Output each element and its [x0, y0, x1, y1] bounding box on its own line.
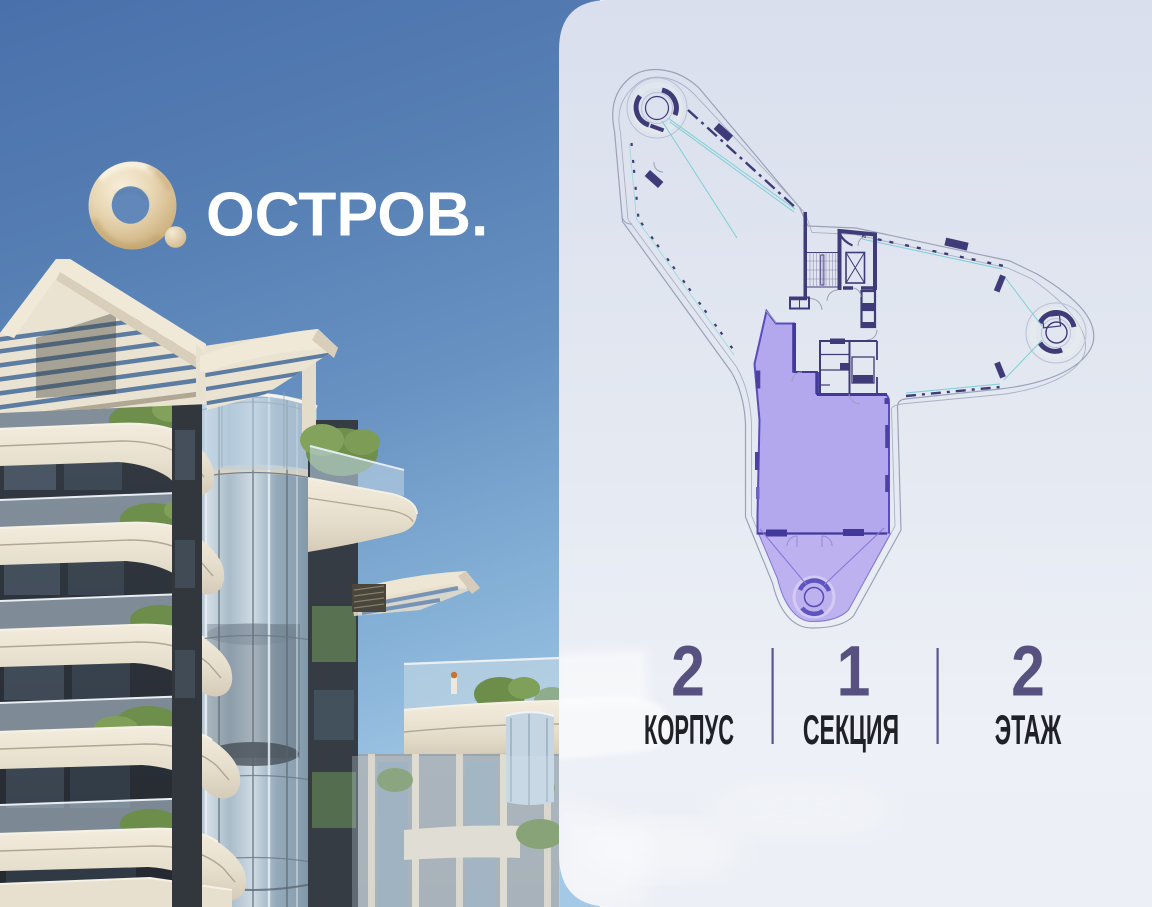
svg-text:ЭТАЖ: ЭТАЖ	[995, 707, 1062, 754]
svg-text:2: 2	[671, 631, 705, 711]
svg-text:ОСТРОВ.: ОСТРОВ.	[206, 180, 488, 250]
svg-text:КОРПУС: КОРПУС	[644, 708, 734, 754]
svg-text:СЕКЦИЯ: СЕКЦИЯ	[803, 707, 899, 754]
svg-text:2: 2	[1011, 631, 1045, 711]
svg-text:1: 1	[837, 631, 871, 711]
